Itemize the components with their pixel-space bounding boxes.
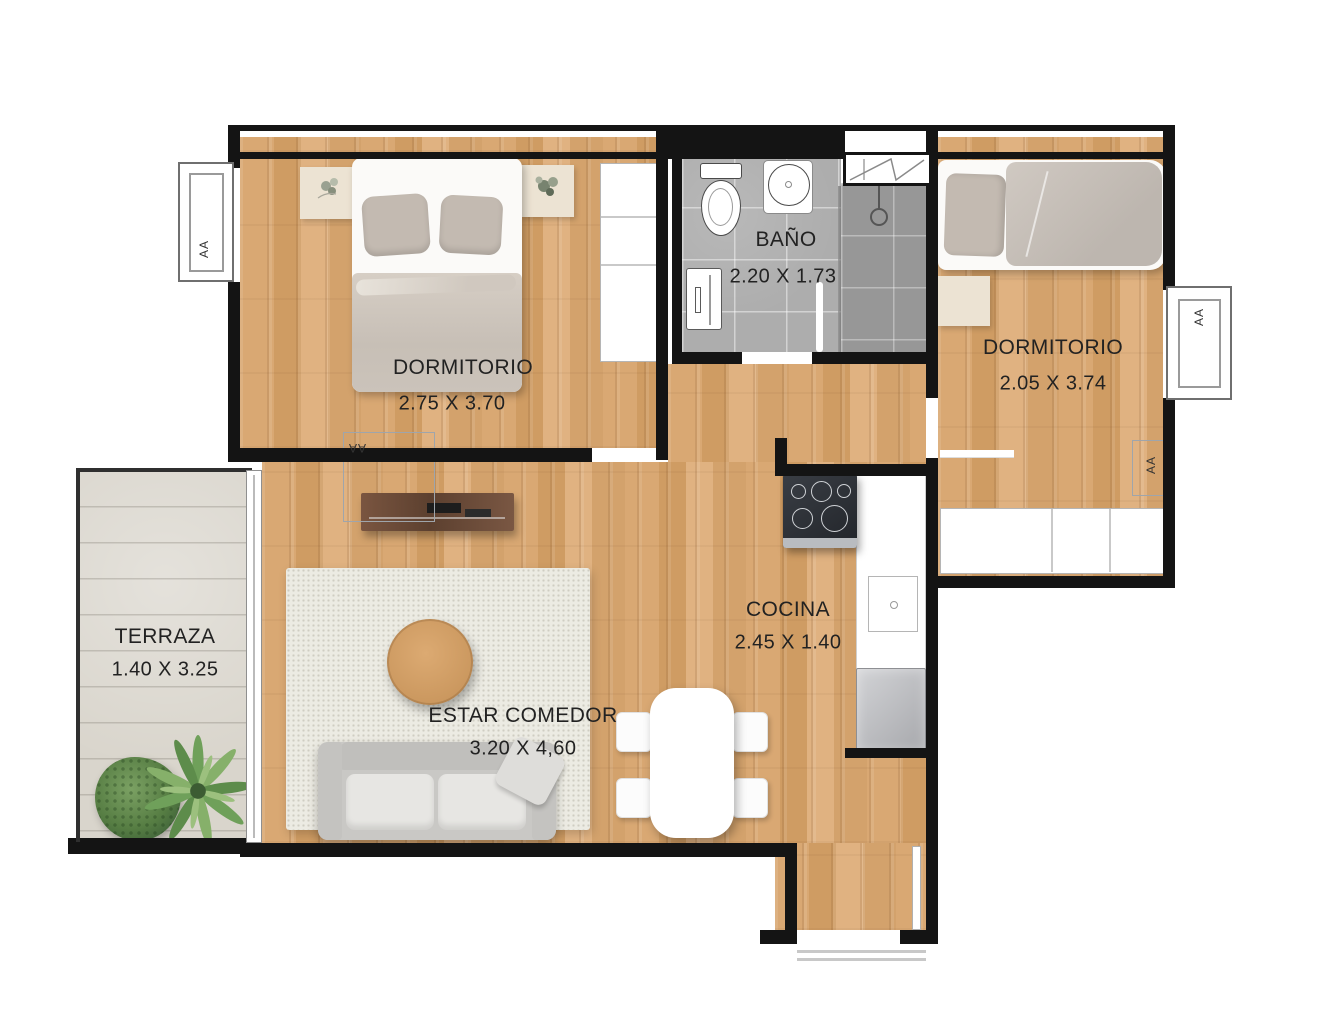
- floor-plan: AA: [0, 0, 1328, 1024]
- cooktop: [783, 474, 857, 548]
- dims-cocina: 2.45 X 1.40: [735, 632, 842, 655]
- kitchen-sink: [868, 576, 918, 632]
- window-right: AA: [1166, 286, 1232, 400]
- wardrobe2-divider: [1051, 509, 1053, 572]
- terrace-plant-fern: [142, 735, 254, 847]
- entry-threshold-line: [797, 950, 926, 953]
- window-left: AA: [178, 162, 234, 282]
- dims-estar-comedor: 3.20 X 4,60: [470, 738, 577, 761]
- sink-drain: [890, 601, 898, 609]
- shower-stem: [878, 186, 880, 210]
- wardrobe-shelf-line: [601, 264, 664, 266]
- wall-bed1-bottom: [228, 448, 592, 462]
- wall-bed2-bottom: [926, 576, 1175, 588]
- bathroom-cabinet: [686, 268, 722, 330]
- wall-right-upper: [1163, 125, 1175, 290]
- wall-top-inner-bed2: [938, 152, 1163, 159]
- shower-head: [870, 208, 888, 226]
- terrace-rail-left: [76, 470, 80, 842]
- entry-door-leaf: [912, 846, 921, 930]
- bed-pillow-right: [439, 194, 504, 255]
- wall-right-lower: [1163, 398, 1175, 588]
- entry-floor: [775, 843, 926, 930]
- wall-entry-right: [926, 748, 938, 944]
- wall-living-bottom: [240, 843, 797, 857]
- cooktop-front-strip: [783, 538, 857, 548]
- bedroom1-floor-mark: AA: [348, 441, 366, 455]
- window-right-label: AA: [1192, 308, 1206, 326]
- wall-left-mid: [228, 282, 240, 462]
- wall-bed1-right: [656, 125, 668, 460]
- label-estar-comedor: ESTAR COMEDOR: [428, 704, 617, 728]
- terrace-rail-top: [76, 468, 252, 472]
- blanket-fold: [356, 274, 516, 296]
- dims-bano: 2.20 X 1.73: [730, 266, 837, 289]
- burner: [821, 505, 848, 532]
- dining-chair: [616, 778, 652, 818]
- dining-chair: [732, 778, 768, 818]
- bathroom-window-glyph: [846, 155, 929, 183]
- dims-dormitorio1: 2.75 X 3.70: [399, 393, 506, 416]
- wall-fridge-bottom: [845, 748, 938, 758]
- label-dormitorio2: DORMITORIO: [983, 336, 1123, 360]
- wardrobe2-divider: [1109, 509, 1111, 572]
- wall-kitchen-right: [926, 588, 938, 750]
- sofa-arm-left: [318, 742, 342, 840]
- hall-floor: [668, 364, 926, 468]
- wall-entry-left-foot: [760, 930, 797, 944]
- burner: [791, 484, 806, 499]
- shower-glass-partition: [838, 186, 841, 352]
- single-bed: [938, 160, 1166, 270]
- wall-bath-left: [672, 159, 682, 364]
- wall-top-bath: [668, 125, 845, 159]
- dining-chair: [616, 712, 652, 752]
- dining-table: [650, 688, 734, 838]
- cabinet-line: [709, 275, 711, 325]
- wardrobe-shelf-line: [601, 216, 664, 218]
- bed-pillow-left: [361, 193, 431, 257]
- dims-dormitorio2: 2.05 X 3.74: [1000, 373, 1107, 396]
- terrace-glass-door: [246, 470, 262, 843]
- console-item: [465, 509, 491, 517]
- glass-door-line: [253, 475, 255, 838]
- wall-bath-bottom-left: [672, 352, 742, 364]
- burner: [792, 508, 813, 529]
- toilet-tank: [700, 163, 742, 179]
- wall-kitchen-top: [775, 464, 938, 476]
- wall-bed2-left-lower: [926, 458, 938, 588]
- bed2-pillow: [944, 173, 1007, 257]
- toilet-inner: [708, 188, 733, 226]
- label-dormitorio1: DORMITORIO: [393, 356, 533, 380]
- cabinet-handle: [695, 287, 701, 313]
- bedroom2-floor-mark: AA: [1144, 456, 1158, 474]
- round-coffee-table: [387, 619, 473, 705]
- plant-on-nightstand-left-icon: [312, 172, 346, 206]
- wall-entry-left: [785, 843, 797, 930]
- duvet-fold: [1025, 171, 1048, 257]
- window-left-label: AA: [197, 240, 211, 258]
- bed2-duvet: [1006, 162, 1162, 266]
- wall-kitchen-stub: [775, 438, 787, 476]
- dims-terraza: 1.40 X 3.25: [112, 659, 219, 682]
- label-cocina: COCINA: [746, 598, 830, 622]
- wall-terrace-bottom: [68, 838, 258, 854]
- bedroom2-door-threshold: [940, 450, 1014, 458]
- washbasin-drain: [785, 181, 792, 188]
- wardrobe-bedroom2: [940, 508, 1166, 574]
- nightstand-bedroom2: [938, 276, 990, 326]
- sofa-cushion-left: [346, 774, 434, 830]
- plant-on-nightstand-right-icon: [528, 170, 564, 206]
- label-bano: BAÑO: [755, 228, 816, 252]
- wall-entry-right-foot: [900, 930, 938, 944]
- shower-towel: [816, 282, 823, 352]
- burner: [837, 484, 851, 498]
- wall-top-inner-bed1: [240, 152, 668, 159]
- dining-chair: [732, 712, 768, 752]
- label-terraza: TERRAZA: [115, 625, 216, 649]
- wall-bath-bottom-right: [812, 352, 938, 364]
- burner: [811, 481, 832, 502]
- washbasin-bowl: [768, 164, 810, 206]
- fridge: [856, 668, 926, 752]
- window-bathroom: [843, 152, 932, 186]
- entry-threshold-line: [797, 958, 926, 961]
